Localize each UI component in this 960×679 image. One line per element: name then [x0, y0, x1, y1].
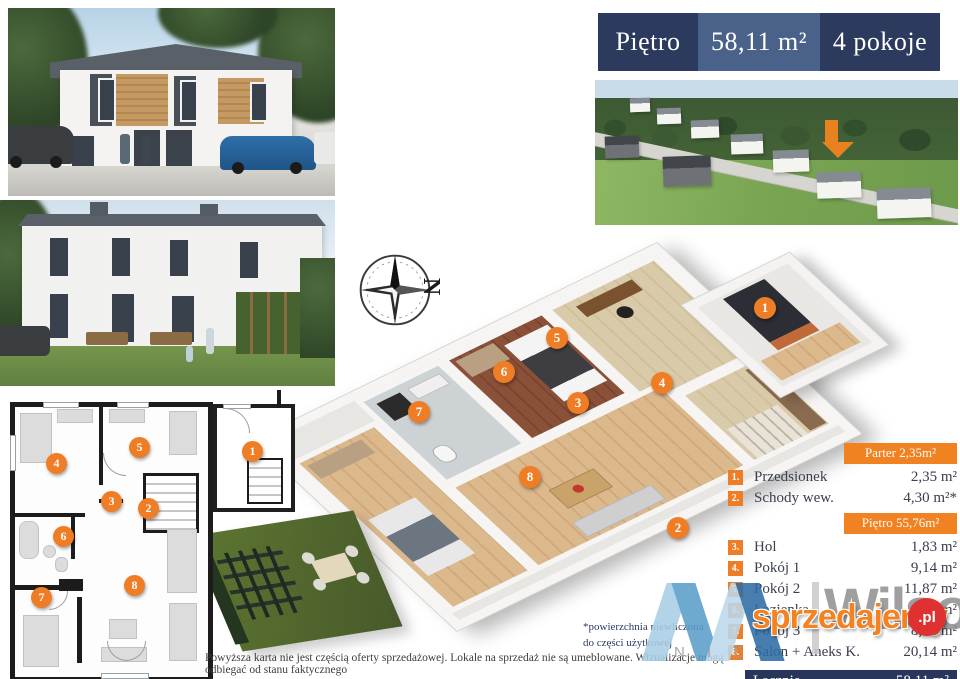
- total-label: Łącznie: [753, 673, 800, 679]
- estate-house: [876, 187, 931, 219]
- wood-panel: [116, 74, 168, 126]
- car-white: [314, 132, 335, 164]
- room-label: Schody wew.: [754, 490, 903, 507]
- room-marker-3: 3: [567, 392, 589, 414]
- room-marker-4: 4: [651, 372, 673, 394]
- location-arrow-icon: [822, 142, 854, 158]
- legend-total-row: Łącznie 58,11 m²: [745, 670, 957, 679]
- room-number-badge: 3.: [728, 540, 743, 555]
- floor-plan-2d: 4 5 3 2 6 7 8: [10, 402, 213, 679]
- window: [168, 238, 190, 278]
- stairs-2d: [247, 458, 283, 504]
- banner-floor-label: Piętro: [598, 13, 698, 71]
- legend-row: 2. Schody wew. 4,30 m²*: [728, 488, 957, 509]
- legend-header-pietro: Piętro 55,76m²: [844, 513, 957, 534]
- room-number-badge: 1.: [728, 470, 743, 485]
- legend-row: 3. Hol 1,83 m²: [728, 537, 957, 558]
- room-marker-2d-2: 2: [138, 498, 159, 519]
- room-area: 9,14 m²: [911, 560, 957, 577]
- window: [238, 240, 260, 280]
- table-2d: [109, 619, 137, 639]
- banner-room-count: 4 pokoje: [820, 13, 940, 71]
- estate-house-dark: [662, 155, 711, 187]
- desk-2d: [57, 409, 93, 423]
- kitchen-2d: [167, 529, 197, 593]
- room-marker-2d-3: 3: [101, 491, 122, 512]
- estate-house: [657, 108, 682, 125]
- person: [206, 328, 214, 354]
- kitchen-2d: [169, 603, 197, 661]
- room-label: Przedsionek: [754, 469, 911, 486]
- wardrobe: [307, 439, 375, 478]
- sink-2d: [43, 545, 56, 558]
- window: [98, 78, 116, 122]
- compass-rose-icon: N: [356, 251, 434, 329]
- estate-house-dark: [605, 135, 640, 158]
- bench: [150, 332, 192, 345]
- room-marker-5: 5: [546, 327, 568, 349]
- room-label: Pokój 1: [754, 560, 911, 577]
- room-marker-2d-1: 1: [242, 441, 263, 462]
- listing-flyer: Piętro 58,11 m² 4 pokoje: [0, 0, 960, 679]
- window: [48, 236, 70, 278]
- area-value: 58,11 m²: [711, 27, 807, 57]
- room-marker-2d-6: 6: [53, 526, 74, 547]
- car-dark: [0, 326, 50, 356]
- window: [250, 82, 268, 122]
- legend-header-parter: Parter 2,35m²: [844, 443, 957, 464]
- room-area: 20,14 m²: [903, 644, 957, 661]
- pergola-greenery: [236, 292, 300, 354]
- window: [48, 292, 70, 340]
- toilet-2d: [55, 557, 68, 572]
- location-arrow-icon: [825, 120, 838, 142]
- wilsons-subtext: N I E: [674, 644, 752, 661]
- person: [120, 134, 130, 164]
- total-area: 58,11 m²: [896, 673, 949, 679]
- bathtub-2d: [19, 521, 39, 559]
- floor-summary-banner: Piętro 58,11 m² 4 pokoje: [598, 13, 940, 71]
- aerial-photo: [595, 80, 958, 225]
- room-marker-2: 2: [667, 517, 689, 539]
- room-area: 1,83 m²: [911, 539, 957, 556]
- room-marker-2d-4: 4: [46, 453, 67, 474]
- bed: [368, 497, 475, 576]
- legend-row: 1. Przedsionek 2,35 m²: [728, 467, 957, 488]
- person: [142, 136, 151, 164]
- compass-north-label: N: [417, 278, 444, 295]
- toilet: [429, 442, 461, 464]
- ground: [8, 166, 335, 196]
- estate-house: [691, 120, 720, 139]
- room-marker-2d-5: 5: [129, 437, 150, 458]
- estate-house: [731, 133, 764, 154]
- estate-house: [773, 149, 810, 172]
- exterior-front-photo: [8, 8, 335, 196]
- bathroom-counter: [407, 373, 451, 399]
- floor-name: Piętro: [615, 27, 680, 57]
- garden-chair: [355, 571, 372, 584]
- estate-house: [630, 98, 650, 113]
- room-number-badge: 2.: [728, 491, 743, 506]
- house-roof: [18, 214, 326, 226]
- entrance-plan-2d: 1: [213, 404, 295, 512]
- bench: [86, 332, 128, 345]
- room-count: 4 pokoje: [833, 27, 927, 57]
- room-area: 2,35 m²: [911, 469, 957, 486]
- room-marker-6: 6: [493, 361, 515, 383]
- person-child: [186, 346, 193, 362]
- car-blue: [220, 136, 316, 170]
- window: [110, 236, 132, 278]
- car-suv: [8, 126, 74, 164]
- sprzedajemy-pl-badge: .pl: [908, 598, 946, 636]
- office-chair: [613, 304, 637, 320]
- window: [180, 80, 198, 122]
- bed-2d: [23, 615, 59, 667]
- room-marker-1: 1: [754, 297, 776, 319]
- room-marker-8: 8: [519, 466, 541, 488]
- estate-house-highlight: [817, 171, 862, 199]
- wardrobe-2d: [169, 411, 197, 455]
- hedge: [300, 258, 335, 358]
- desk-2d: [109, 409, 145, 423]
- room-label: Hol: [754, 539, 911, 556]
- room-marker-7: 7: [408, 401, 430, 423]
- bed-2d: [20, 413, 52, 463]
- entry-door: [166, 130, 192, 168]
- room-marker-2d-7: 7: [31, 587, 52, 608]
- exterior-garden-photo: [0, 200, 335, 386]
- room-area: 4,30 m²*: [903, 490, 957, 507]
- banner-area-value: 58,11 m²: [698, 13, 820, 71]
- chimney: [90, 202, 108, 216]
- room-marker-2d-8: 8: [124, 575, 145, 596]
- chimney: [200, 204, 218, 216]
- room-number-badge: 4.: [728, 561, 743, 576]
